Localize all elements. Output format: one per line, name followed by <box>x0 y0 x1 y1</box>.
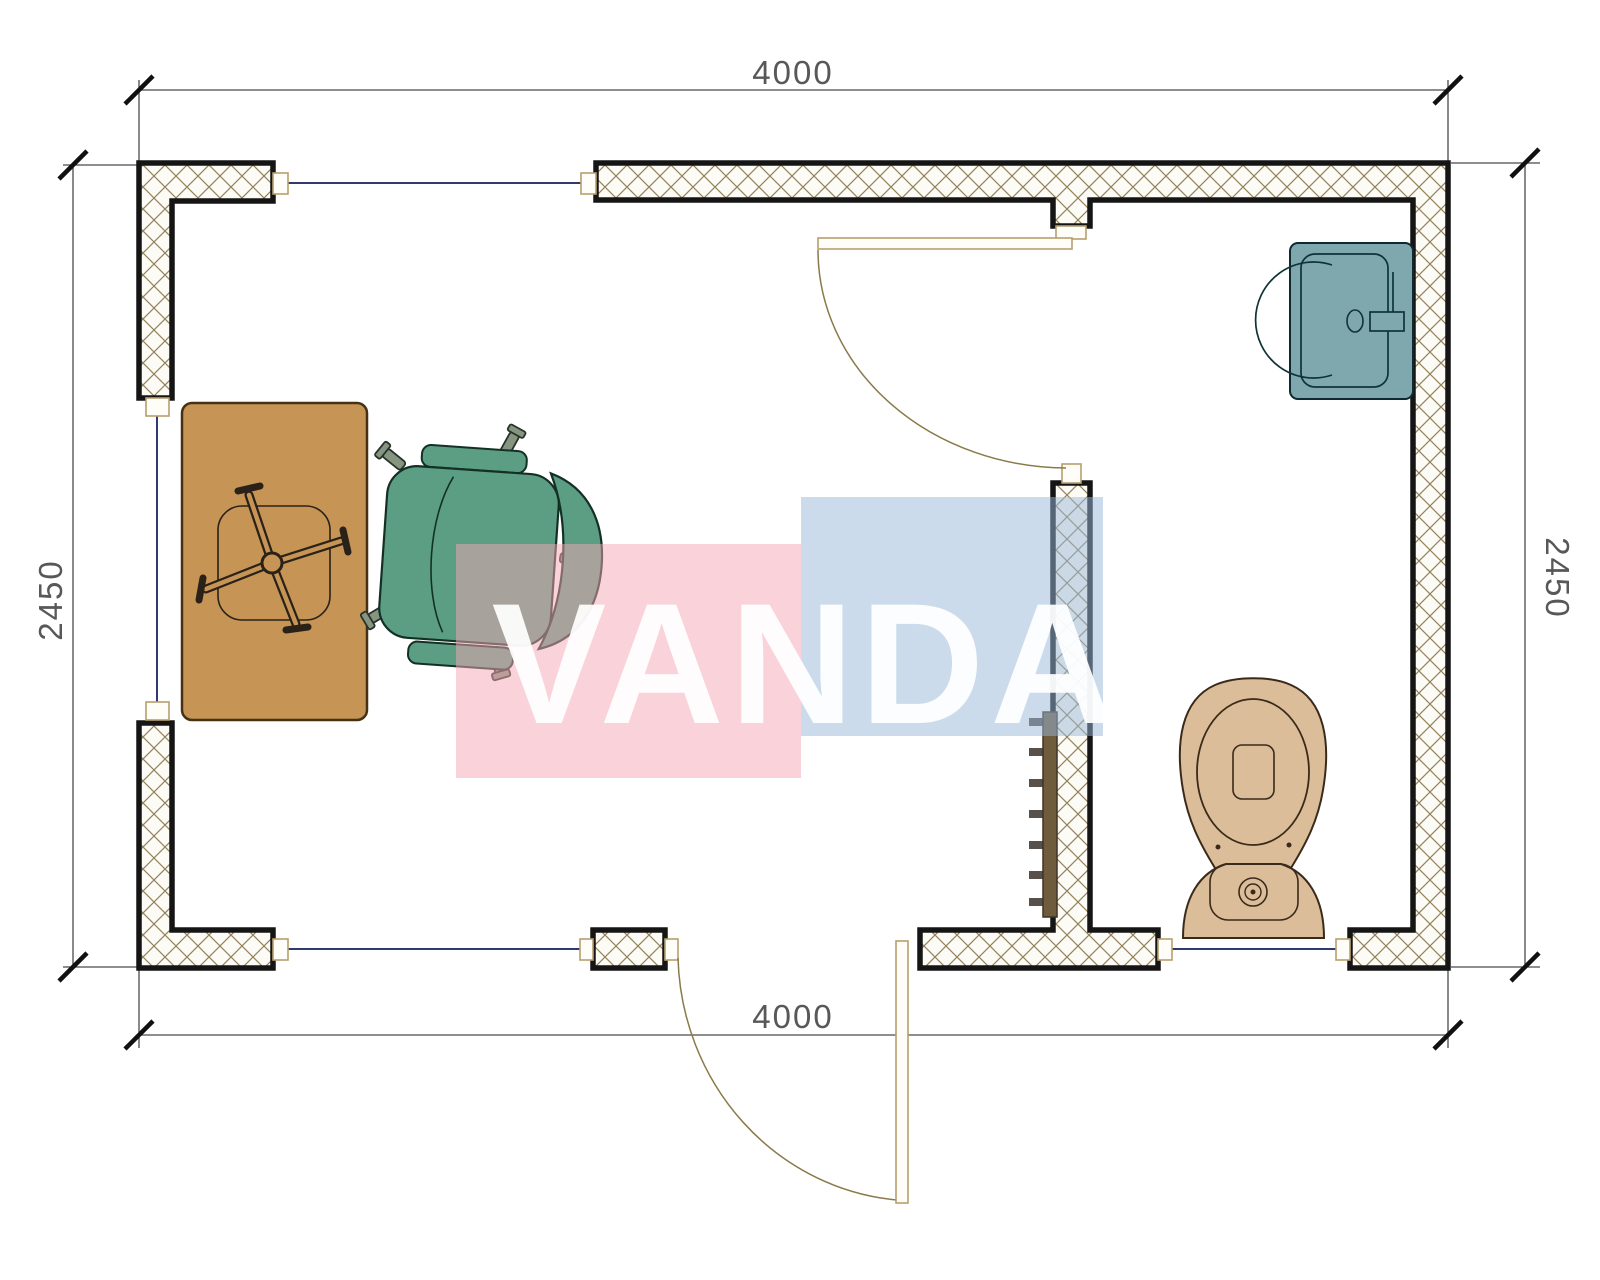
exterior-door-leaf <box>896 941 908 1203</box>
dim-text-left: 2450 <box>32 559 69 640</box>
toilet <box>1180 678 1326 938</box>
interior-door-leaf <box>818 238 1072 249</box>
window-jamb <box>1158 939 1172 960</box>
window-jamb <box>581 173 596 194</box>
toilet-seat-hinge <box>1233 745 1274 799</box>
desk <box>182 403 367 720</box>
radiator-fin <box>1029 841 1044 849</box>
dim-text-right: 2450 <box>1539 537 1576 618</box>
radiator-fin <box>1029 810 1044 818</box>
radiator-fin <box>1029 871 1044 879</box>
window-jamb <box>580 939 593 960</box>
exterior-door-swing-arc <box>678 958 897 1200</box>
toilet-bolt <box>1287 843 1292 848</box>
radiator-fin <box>1029 898 1044 906</box>
floor-plan-page: 4000 4000 2450 2450 <box>0 0 1600 1280</box>
sink-faucet <box>1370 312 1404 331</box>
dim-text-bottom: 4000 <box>752 998 833 1035</box>
toilet-flush-button-dot <box>1251 890 1256 895</box>
radiator-fin <box>1029 779 1044 787</box>
window-jamb <box>1336 939 1350 960</box>
wall-bottom-segment <box>593 930 665 968</box>
interior-door-swing-arc <box>818 250 1066 468</box>
window-jamb <box>146 702 169 720</box>
window-jamb <box>146 398 169 416</box>
sink <box>1256 243 1413 399</box>
floor-plan-drawing: 4000 4000 2450 2450 <box>0 0 1600 1280</box>
tucked-chair-base-hub <box>262 553 282 573</box>
door-jamb <box>1062 464 1081 483</box>
door-jamb <box>665 939 678 960</box>
exterior-door <box>678 941 908 1203</box>
door-hinge-block <box>1056 226 1086 239</box>
toilet-bolt <box>1216 845 1221 850</box>
wall-bottom-left <box>139 723 273 968</box>
wall-top-left <box>139 163 273 398</box>
toilet-tank <box>1183 864 1324 938</box>
interior-door <box>818 238 1072 468</box>
window-jamb <box>273 939 288 960</box>
watermark-text: VANDA <box>492 568 1121 760</box>
dim-text-top: 4000 <box>752 54 833 91</box>
window-jamb <box>273 173 288 194</box>
